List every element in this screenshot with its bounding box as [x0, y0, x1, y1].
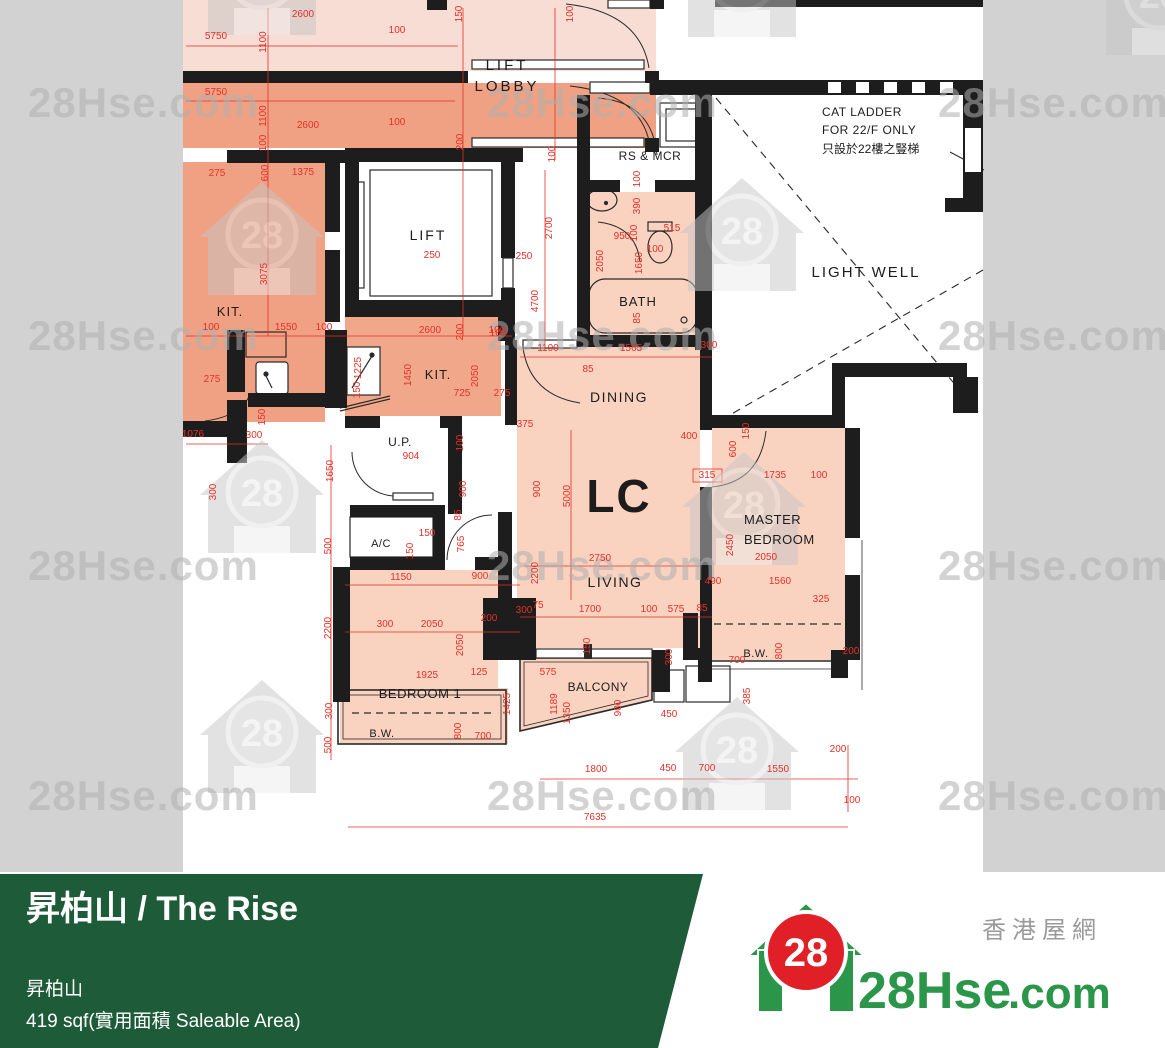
- dimension-label: 300: [324, 702, 335, 719]
- dimension-label: 1700: [579, 604, 602, 615]
- dimension-label: 300: [377, 619, 394, 630]
- dimension-label: 1150: [390, 572, 412, 583]
- dimension-label: 200: [481, 613, 498, 624]
- logo-sitename-suffix: .com: [1008, 969, 1111, 1018]
- dimension-label: 700: [475, 731, 492, 742]
- dimension-label: 1189: [549, 693, 560, 715]
- room-label: BATH: [619, 294, 657, 309]
- dimension-label: 100: [389, 25, 406, 36]
- dimension-label: 5750: [205, 31, 228, 42]
- dimension-label: 100: [641, 604, 658, 615]
- dimension-label: 900: [613, 699, 624, 716]
- dimension-label: 2050: [421, 619, 444, 630]
- room-label: BALCONY: [568, 680, 629, 694]
- dimension-label: 1550: [767, 764, 790, 775]
- room-label: KIT.: [217, 304, 243, 319]
- dimension-label: 2600: [419, 325, 442, 336]
- dimension-label: 1650: [325, 459, 336, 482]
- dimension-label: 1735: [764, 470, 787, 481]
- dimension-label: 150: [454, 5, 465, 22]
- dimension-label: 200: [830, 744, 847, 755]
- dimension-label: 1450: [403, 363, 414, 386]
- dimension-label: 100: [455, 434, 466, 451]
- dimension-label: 1925: [416, 670, 439, 681]
- dimension-label: 200: [843, 646, 860, 657]
- dimension-label: 150: [257, 408, 268, 425]
- floorplan-page: 28282828282828282828Hse.com28Hse.com28Hs…: [0, 0, 1165, 1048]
- dimension-label: 400: [681, 431, 698, 442]
- dimension-label: 575: [668, 604, 685, 615]
- room-label: MASTER: [744, 512, 801, 527]
- dimension-label: 5750: [205, 87, 228, 98]
- dimension-label: 385: [742, 687, 753, 704]
- dimension-label: 2600: [292, 9, 315, 20]
- logo-badge-number: 28: [784, 931, 829, 975]
- room-label: FOR 22/F ONLY: [822, 123, 916, 137]
- room-label: LC: [586, 470, 651, 522]
- dimension-label: 85: [632, 312, 643, 324]
- room-label: LIFT: [410, 227, 447, 243]
- watermark-text: 28Hse.com: [28, 772, 259, 819]
- dimension-label: 800: [453, 722, 464, 739]
- watermark-text: 28Hse.com: [938, 79, 1165, 126]
- dimension-label: 100: [629, 224, 640, 241]
- saleable-area: 419 sqf(實用面積 Saleable Area): [26, 1010, 301, 1032]
- estate-title: 昇柏山 / The Rise: [26, 890, 298, 928]
- watermark-text: 28Hse.com: [938, 312, 1165, 359]
- watermark-text: 28Hse.com: [28, 312, 259, 359]
- dimension-label: 390: [632, 197, 643, 214]
- room-label: DINING: [590, 389, 648, 405]
- watermark-text: 28Hse.com: [938, 542, 1165, 589]
- dimension-label: 450: [660, 763, 677, 774]
- dimension-label: 300: [208, 483, 219, 500]
- dimension-label: 150: [582, 637, 593, 654]
- dimension-label: 100: [389, 117, 406, 128]
- dimension-label: 515: [664, 223, 681, 234]
- dimension-label: 500: [323, 537, 334, 554]
- dimension-label: 2750: [589, 553, 612, 564]
- floorplan-image: 28282828282828282828Hse.com28Hse.com28Hs…: [0, 0, 1165, 1048]
- dimension-label: 600: [728, 440, 739, 457]
- dimension-label: 5000: [562, 484, 573, 507]
- room-label: 只設於22樓之豎梯: [822, 141, 919, 156]
- dimension-label: 300: [701, 340, 718, 351]
- dimension-label: 2050: [455, 633, 466, 656]
- dimension-label: 85: [582, 364, 594, 375]
- room-label: LIVING: [588, 574, 643, 590]
- dimension-label: 900: [472, 571, 489, 582]
- room-label: U.P.: [388, 435, 412, 449]
- dimension-label: 1100: [258, 31, 269, 53]
- dimension-label: 725: [454, 388, 471, 399]
- dimension-label: 950: [614, 231, 631, 242]
- dimension-label: 1560: [769, 576, 792, 587]
- dimension-label: 900: [532, 480, 543, 497]
- dimension-label: 2050: [595, 249, 606, 272]
- dimension-label: 100: [316, 322, 333, 333]
- dimension-label: 85: [696, 603, 708, 614]
- dimension-label: 100: [490, 328, 507, 339]
- dimension-label: 100: [844, 795, 861, 806]
- dimension-label: 250: [516, 251, 533, 262]
- watermark-house-number: 28: [716, 730, 758, 772]
- dimension-label: 85: [453, 509, 464, 521]
- dimension-label: 2600: [297, 120, 320, 131]
- dimension-label: 2700: [544, 216, 555, 239]
- watermark-house-number: 28: [721, 211, 763, 253]
- dimension-label: 2050: [755, 552, 778, 563]
- room-label: B.W.: [369, 728, 394, 740]
- dimension-label: 1076: [182, 429, 205, 440]
- room-label: LOBBY: [474, 78, 539, 95]
- dimension-label: 4700: [530, 289, 541, 312]
- dimension-label: 2200: [530, 561, 541, 584]
- dimension-label: 1100: [258, 105, 269, 127]
- watermark-house-icon: 28: [1098, 0, 1165, 55]
- dimension-label: 275: [209, 168, 226, 179]
- dimension-label: 1100: [537, 343, 559, 354]
- dimension-label: 1375: [292, 167, 315, 178]
- room-label: RS & MCR: [619, 149, 682, 163]
- logo-tagline: 香港屋網: [982, 917, 1102, 944]
- room-label: B.W.: [743, 648, 768, 660]
- dimension-label: 500: [323, 736, 334, 753]
- dimension-label: 100: [547, 145, 558, 162]
- dimension-label: 150: [405, 542, 416, 559]
- dimension-label: 1550: [275, 322, 298, 333]
- dimension-label: 375: [517, 419, 534, 430]
- dimension-label: 150: [419, 528, 436, 539]
- logo-sitename: 28Hse: [858, 962, 1011, 1020]
- dimension-label: 200: [455, 133, 466, 150]
- dimension-label: 100: [632, 170, 643, 187]
- dimension-label: 450: [661, 709, 678, 720]
- watermark-text: 28Hse.com: [487, 312, 718, 359]
- dimension-label: 1800: [585, 764, 608, 775]
- dimension-label: 150: [352, 381, 363, 398]
- dimension-label: 150: [741, 422, 752, 439]
- dimension-label: 100: [811, 470, 828, 481]
- dimension-label: 100: [565, 5, 576, 22]
- room-label: LIGHT WELL: [812, 264, 921, 281]
- dimension-label: 765: [456, 535, 467, 552]
- dimension-label: 300: [516, 605, 533, 616]
- room-label: KIT.: [425, 367, 451, 382]
- watermark-house-icon: 28: [680, 0, 804, 37]
- dimension-label: 275: [204, 374, 221, 385]
- watermark-house-number: 28: [1139, 0, 1165, 17]
- dimension-label: 575: [540, 667, 557, 678]
- watermark-house-number: 28: [241, 215, 283, 257]
- watermark-text: 28Hse.com: [28, 542, 259, 589]
- dimension-label: 100: [647, 244, 664, 255]
- room-label: LIFT: [486, 57, 529, 74]
- dimension-label: 904: [403, 451, 420, 462]
- estate-name: 昇柏山: [26, 978, 83, 1000]
- dimension-label: 700: [699, 763, 716, 774]
- dimension-label: 1225: [353, 356, 364, 379]
- dimension-label: 325: [813, 594, 830, 605]
- dimension-label: 2050: [470, 364, 481, 387]
- dimension-label: 100: [258, 134, 269, 151]
- dimension-label: 315: [699, 470, 716, 481]
- room-label: BEDROOM: [744, 532, 815, 547]
- dimension-label: 300: [246, 430, 263, 441]
- watermark-house-number: 28: [241, 473, 283, 515]
- dimension-label: 300: [664, 648, 675, 665]
- dimension-label: 490: [705, 576, 722, 587]
- room-label: CAT LADDER: [822, 105, 902, 119]
- dimension-label: 7635: [584, 812, 607, 823]
- dimension-label: 1565: [620, 343, 643, 354]
- dimension-label: 275: [494, 388, 511, 399]
- dimension-label: 100: [203, 322, 220, 333]
- dimension-label: 600: [260, 164, 271, 181]
- dimension-label: 900: [458, 480, 469, 497]
- dimension-label: 250: [424, 250, 441, 261]
- dimension-label: 2200: [323, 616, 334, 639]
- room-label: BEDROOM 1: [379, 686, 462, 701]
- dimension-label: 1350: [562, 701, 573, 724]
- dimension-label: 125: [471, 667, 488, 678]
- dimension-label: 3075: [259, 262, 270, 285]
- room-label: A/C: [371, 538, 391, 550]
- dimension-label: 200: [455, 323, 466, 340]
- dimension-label: 1650: [634, 251, 645, 274]
- watermark-text: 28Hse.com: [938, 772, 1165, 819]
- dimension-label: 1425: [502, 692, 513, 715]
- dimension-label: 75: [532, 600, 544, 611]
- dimension-label: 800: [774, 642, 785, 659]
- watermark-house-number: 28: [241, 713, 283, 755]
- dimension-label: 2450: [725, 533, 736, 556]
